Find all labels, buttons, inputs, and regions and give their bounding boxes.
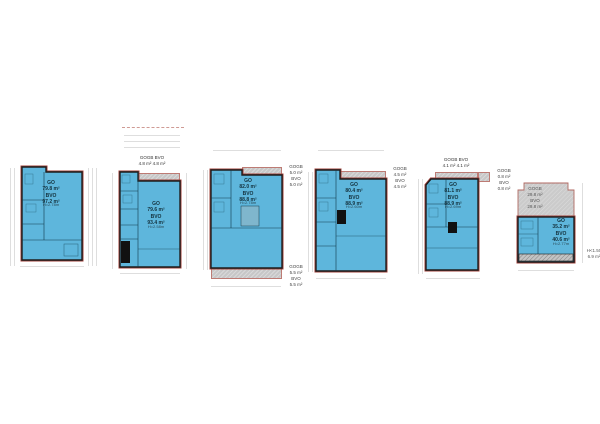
height-note: H=2.69m [439,205,467,210]
floor-plan-4: GO 80.4 m² BVO 88.9 m² H=2.60m GOGB 4.5 … [310,158,415,283]
dimension-line [20,266,84,267]
height-note: H=2.77m [548,242,574,247]
floor-plan-3: GO 82.0 m² BVO 88.8 m² H=2.78m GOGB 5.0 … [205,158,310,290]
floor-plan-sheet: GO 79.8 m² BVO 97.2 m² H=2.78m GOGB BVO … [0,0,600,424]
dimension-line [318,150,384,151]
dimension-line [88,168,89,266]
floor-plan-5: GOGB BVO 4.1 m² 4.1 m² GO 81.1 m² BVO 88… [408,152,520,287]
balcony-annotation: GOGB 5.0 m² BVO 5.0 m² [283,164,309,187]
low-height-note: H<1.50 6.9 m² [578,248,600,260]
floor-plan-1-drawing [20,160,86,264]
dimension-line [213,150,281,151]
dimension-line [14,168,15,266]
height-note: H=2.78m [34,203,68,208]
floor-plan-2-drawing [118,125,184,275]
height-note: H=2.60m [340,205,368,210]
floor-plan-4-drawing [310,158,392,278]
floor-plan-1: GO 79.8 m² BVO 97.2 m² H=2.78m [20,160,120,272]
dimension-line [112,173,113,269]
dimension-line [203,170,204,270]
dimension-line [96,168,97,266]
attic-annotation: GOGB 29.8 m² BVO 29.8 m² [520,186,550,209]
terrace-annotation: GOGB 5.5 m² BVO 5.5 m² [283,264,309,287]
dimension-line [308,172,309,272]
area-label: GO 79.6 m² BVO 93.4 m² [140,201,172,226]
dimension-line [316,278,386,279]
dimension-line [10,168,11,266]
dimension-line [92,168,93,266]
height-note: H=2.78m [235,201,261,206]
height-note: H=2.58m [140,225,172,230]
dimension-line [186,173,187,269]
area-label: GO 35.2 m² BVO 40.6 m² [548,218,574,243]
floor-plan-6: GOGB 29.8 m² BVO 29.8 m² GO 35.2 m² BVO … [512,176,600,281]
